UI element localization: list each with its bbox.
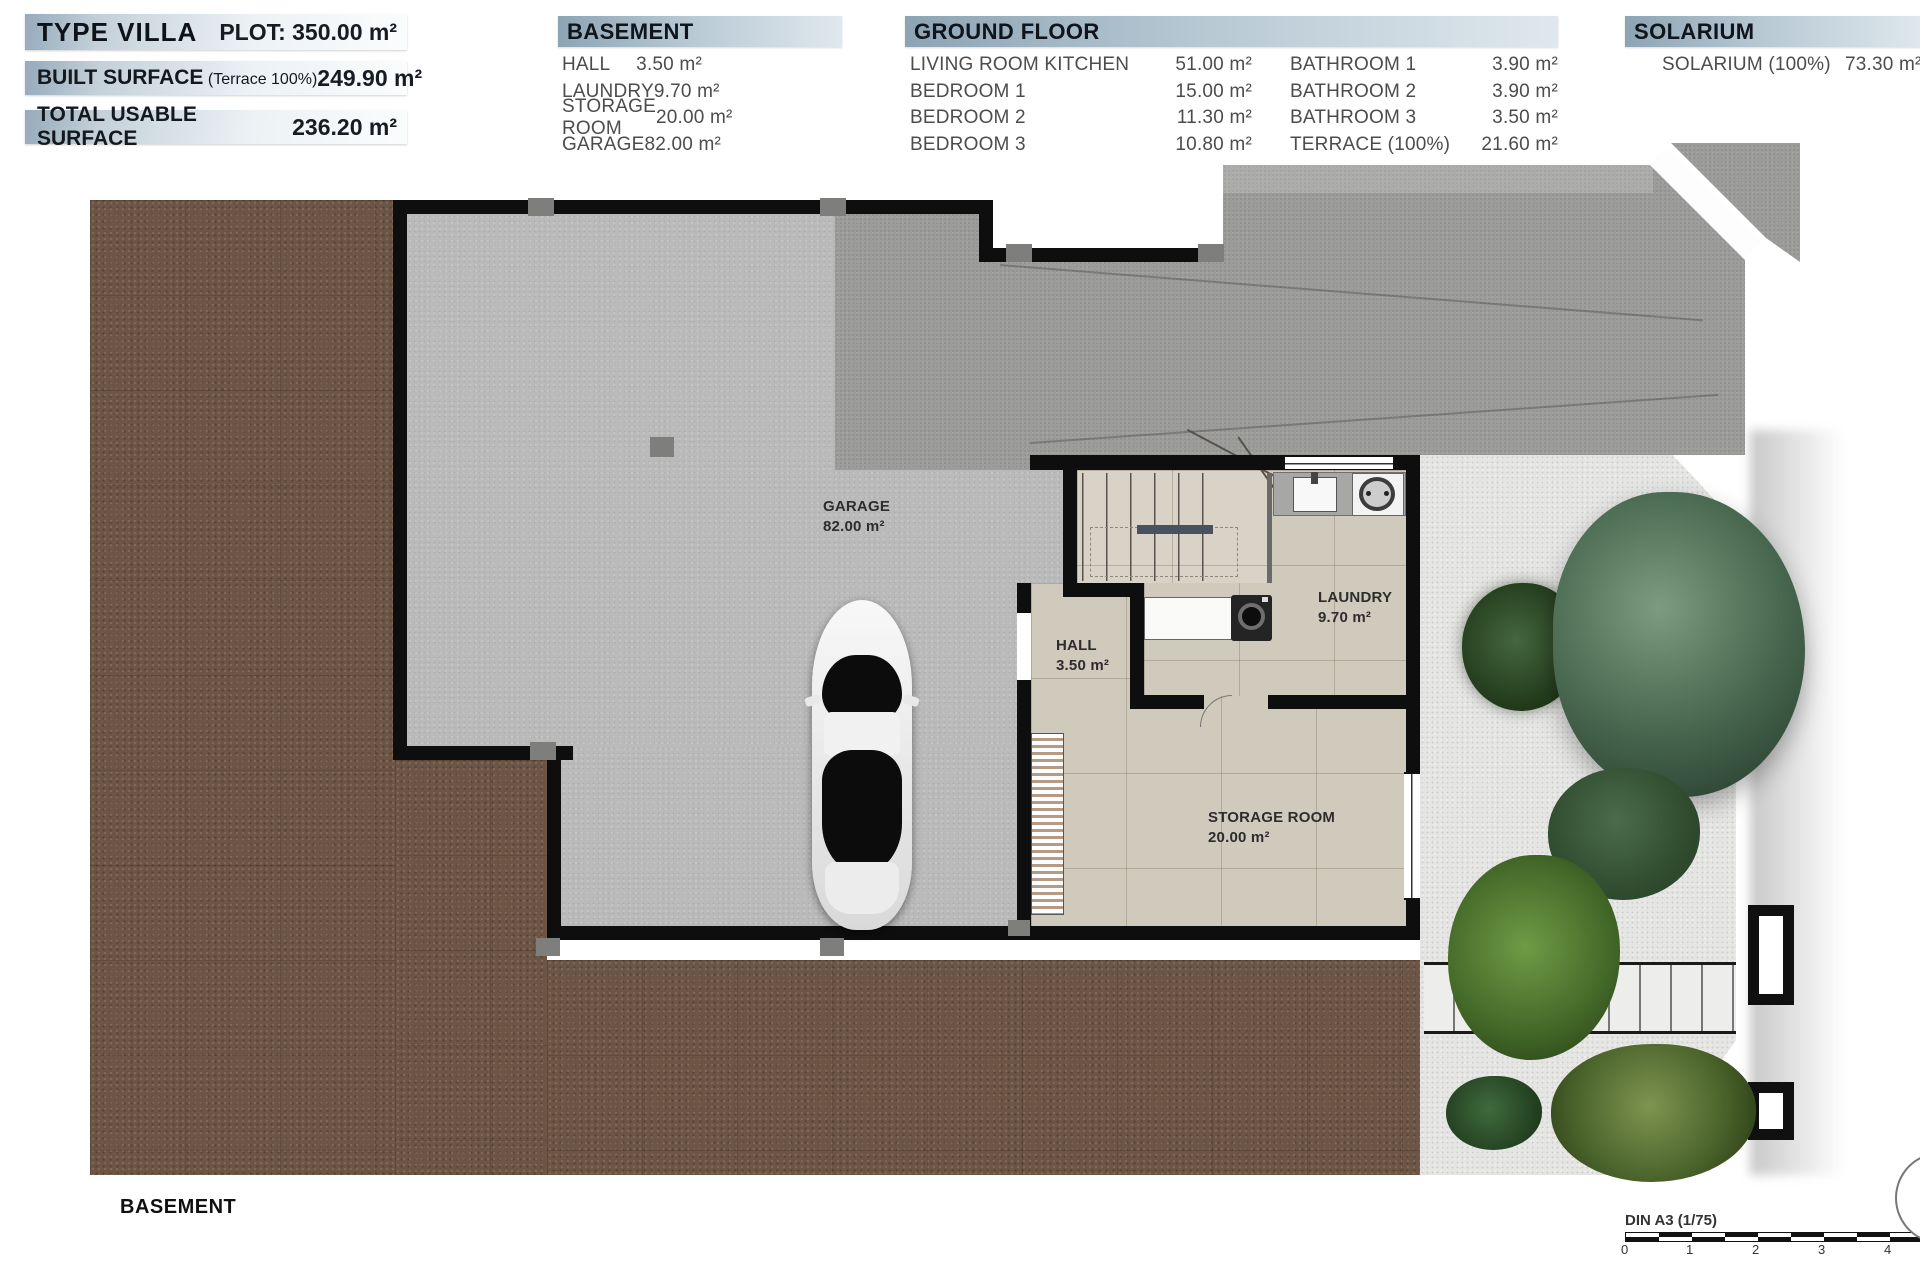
wall: [1017, 583, 1031, 613]
gravel-plot-bottom: [547, 960, 1420, 1175]
column: [1198, 244, 1224, 262]
room-area: 9.70 m²: [1318, 608, 1392, 628]
room-label-storage: STORAGE ROOM 20.00 m²: [1208, 808, 1335, 848]
row-label: SOLARIUM (100%): [1662, 54, 1831, 76]
gravel-plot-mid: [395, 760, 547, 1175]
table-row: BEDROOM 211.30 m²: [910, 105, 1252, 132]
wall: [1144, 695, 1204, 709]
usable-surface-value: 236.20 m²: [292, 114, 397, 141]
built-surface-value: 249.90 m²: [317, 65, 422, 92]
plot-area-value: PLOT: 350.00 m²: [219, 19, 397, 46]
hall-shelving: [1031, 733, 1064, 915]
stair-edge-marker: [1137, 525, 1213, 534]
stair-laundry-divider: [1267, 473, 1272, 583]
car-trunk: [825, 862, 899, 914]
column: [820, 938, 844, 956]
wall: [547, 746, 561, 940]
row-label: BEDROOM 1: [910, 81, 1026, 103]
room-name: HALL: [1056, 636, 1109, 656]
car-rear-glass: [822, 750, 902, 872]
wall: [1268, 695, 1420, 709]
ground-floor-table-right: BATHROOM 13.90 m² BATHROOM 23.90 m² BATH…: [1290, 52, 1558, 158]
room-label-laundry: LAUNDRY 9.70 m²: [1318, 588, 1392, 628]
scale-bar: DIN A3 (1/75) 0 1 2 3 4: [1625, 1212, 1920, 1258]
row-value: 10.80 m²: [1175, 134, 1252, 156]
room-label-hall: HALL 3.50 m²: [1056, 636, 1109, 676]
row-label: HALL: [562, 54, 610, 76]
walkway-gate: [1748, 905, 1794, 1005]
basin-unit: [1352, 473, 1404, 516]
laundry-bench: [1144, 597, 1232, 640]
floor-name-label: BASEMENT: [120, 1196, 236, 1219]
usable-surface-label: TOTAL USABLE SURFACE: [37, 103, 292, 151]
scale-bar-bottom: [1626, 1237, 1920, 1241]
column: [1006, 244, 1032, 262]
summary-bar-usable: TOTAL USABLE SURFACE 236.20 m²: [25, 110, 407, 144]
row-label: LIVING ROOM KITCHEN: [910, 54, 1129, 76]
stair-dashed-outline: [1090, 527, 1238, 577]
washer-knob: [1262, 597, 1268, 602]
garage-floor: [407, 470, 1063, 590]
wall: [1063, 470, 1077, 590]
room-area: 82.00 m²: [823, 517, 890, 537]
car: [812, 600, 912, 930]
table-row: BEDROOM 115.00 m²: [910, 79, 1252, 106]
scale-tick: 0: [1621, 1242, 1628, 1257]
room-name: GARAGE: [823, 497, 890, 517]
row-value: 21.60 m²: [1481, 134, 1558, 156]
room-label-garage: GARAGE 82.00 m²: [823, 497, 890, 537]
row-label: GARAGE: [562, 134, 645, 156]
scale-label: DIN A3 (1/75): [1625, 1212, 1920, 1229]
scale-tick: 1: [1686, 1242, 1693, 1257]
row-label: TERRACE (100%): [1290, 134, 1450, 156]
row-label: BATHROOM 2: [1290, 81, 1416, 103]
basement-section-header: BASEMENT: [558, 16, 842, 47]
row-label: BATHROOM 1: [1290, 54, 1416, 76]
garage-floor: [561, 746, 1017, 926]
window: [1404, 772, 1422, 900]
built-surface-label-group: BUILT SURFACE (Terrace 100%): [37, 66, 317, 90]
row-value: 3.90 m²: [1492, 54, 1558, 76]
gravel-plot-left: [90, 200, 395, 1175]
floorplan-sheet: TYPE VILLA PLOT: 350.00 m² BUILT SURFACE…: [0, 0, 1920, 1280]
summary-bar-type: TYPE VILLA PLOT: 350.00 m²: [25, 14, 407, 50]
column: [536, 938, 560, 956]
ground-floor-table-left: LIVING ROOM KITCHEN51.00 m² BEDROOM 115.…: [910, 52, 1252, 158]
row-value: 11.30 m²: [1177, 107, 1252, 129]
table-row: TERRACE (100%)21.60 m²: [1290, 132, 1558, 159]
row-value: 20.00 m²: [656, 107, 733, 129]
tap-dot: [1366, 491, 1371, 496]
room-area: 3.50 m²: [1056, 656, 1109, 676]
row-value: 51.00 m²: [1175, 54, 1252, 76]
wall: [1130, 583, 1144, 709]
row-label: BATHROOM 3: [1290, 107, 1416, 129]
column: [528, 198, 554, 216]
column: [820, 198, 846, 216]
wall: [393, 200, 993, 214]
room-name: LAUNDRY: [1318, 588, 1392, 608]
window: [1283, 457, 1395, 469]
row-value: 3.50 m²: [1492, 107, 1558, 129]
faucet-icon: [1311, 472, 1318, 484]
scale-ticks: 0 1 2 3 4: [1625, 1242, 1920, 1258]
summary-bar-built: BUILT SURFACE (Terrace 100%) 249.90 m²: [25, 61, 407, 95]
column: [1008, 920, 1030, 936]
row-value: 9.70 m²: [654, 81, 720, 103]
solarium-section-header: SOLARIUM: [1625, 16, 1920, 47]
room-area: 20.00 m²: [1208, 828, 1335, 848]
table-row: HALL3.50 m²: [562, 52, 702, 79]
built-surface-label: BUILT SURFACE: [37, 66, 203, 89]
garage-floor: [407, 590, 1017, 746]
table-row: BATHROOM 13.90 m²: [1290, 52, 1558, 79]
table-row: STORAGE ROOM20.00 m²: [562, 105, 702, 132]
row-label: BEDROOM 2: [910, 107, 1026, 129]
room-name: STORAGE ROOM: [1208, 808, 1335, 828]
scale-bar-graphic: [1625, 1232, 1920, 1242]
wall: [1017, 680, 1031, 940]
built-surface-note: (Terrace 100%): [208, 71, 317, 88]
round-basin-icon: [1359, 477, 1395, 511]
column: [530, 742, 556, 760]
tap-dot: [1384, 491, 1389, 496]
table-row: GARAGE82.00 m²: [562, 132, 702, 159]
row-value: 3.50 m²: [636, 54, 702, 76]
basement-table: HALL3.50 m² LAUNDRY9.70 m² STORAGE ROOM2…: [562, 52, 702, 158]
washer-door: [1238, 603, 1265, 630]
washing-machine-icon: [1231, 595, 1272, 641]
row-value: 15.00 m²: [1175, 81, 1252, 103]
grass-plant: [1551, 1044, 1756, 1182]
ground-floor-section-header: GROUND FLOOR: [905, 16, 1558, 47]
scale-tick: 2: [1752, 1242, 1759, 1257]
row-value: 3.90 m²: [1492, 81, 1558, 103]
villa-type-title: TYPE VILLA: [37, 17, 197, 48]
wall: [393, 200, 407, 760]
sidewalk-strip: [1223, 165, 1653, 193]
corner-path: [1640, 140, 1800, 270]
row-label: BEDROOM 3: [910, 134, 1026, 156]
bush: [1446, 1076, 1542, 1150]
scale-tick: 3: [1818, 1242, 1825, 1257]
wall: [979, 214, 993, 262]
solarium-row: SOLARIUM (100%) 73.30 m²: [1662, 52, 1920, 79]
table-row: LIVING ROOM KITCHEN51.00 m²: [910, 52, 1252, 79]
row-value: 82.00 m²: [645, 134, 722, 156]
table-row: BATHROOM 23.90 m²: [1290, 79, 1558, 106]
table-row: BEDROOM 310.80 m²: [910, 132, 1252, 159]
wall: [547, 926, 1420, 940]
row-value: 73.30 m²: [1845, 54, 1920, 76]
column: [650, 437, 674, 457]
scale-tick: 4: [1884, 1242, 1891, 1257]
table-row: BATHROOM 33.50 m²: [1290, 105, 1558, 132]
